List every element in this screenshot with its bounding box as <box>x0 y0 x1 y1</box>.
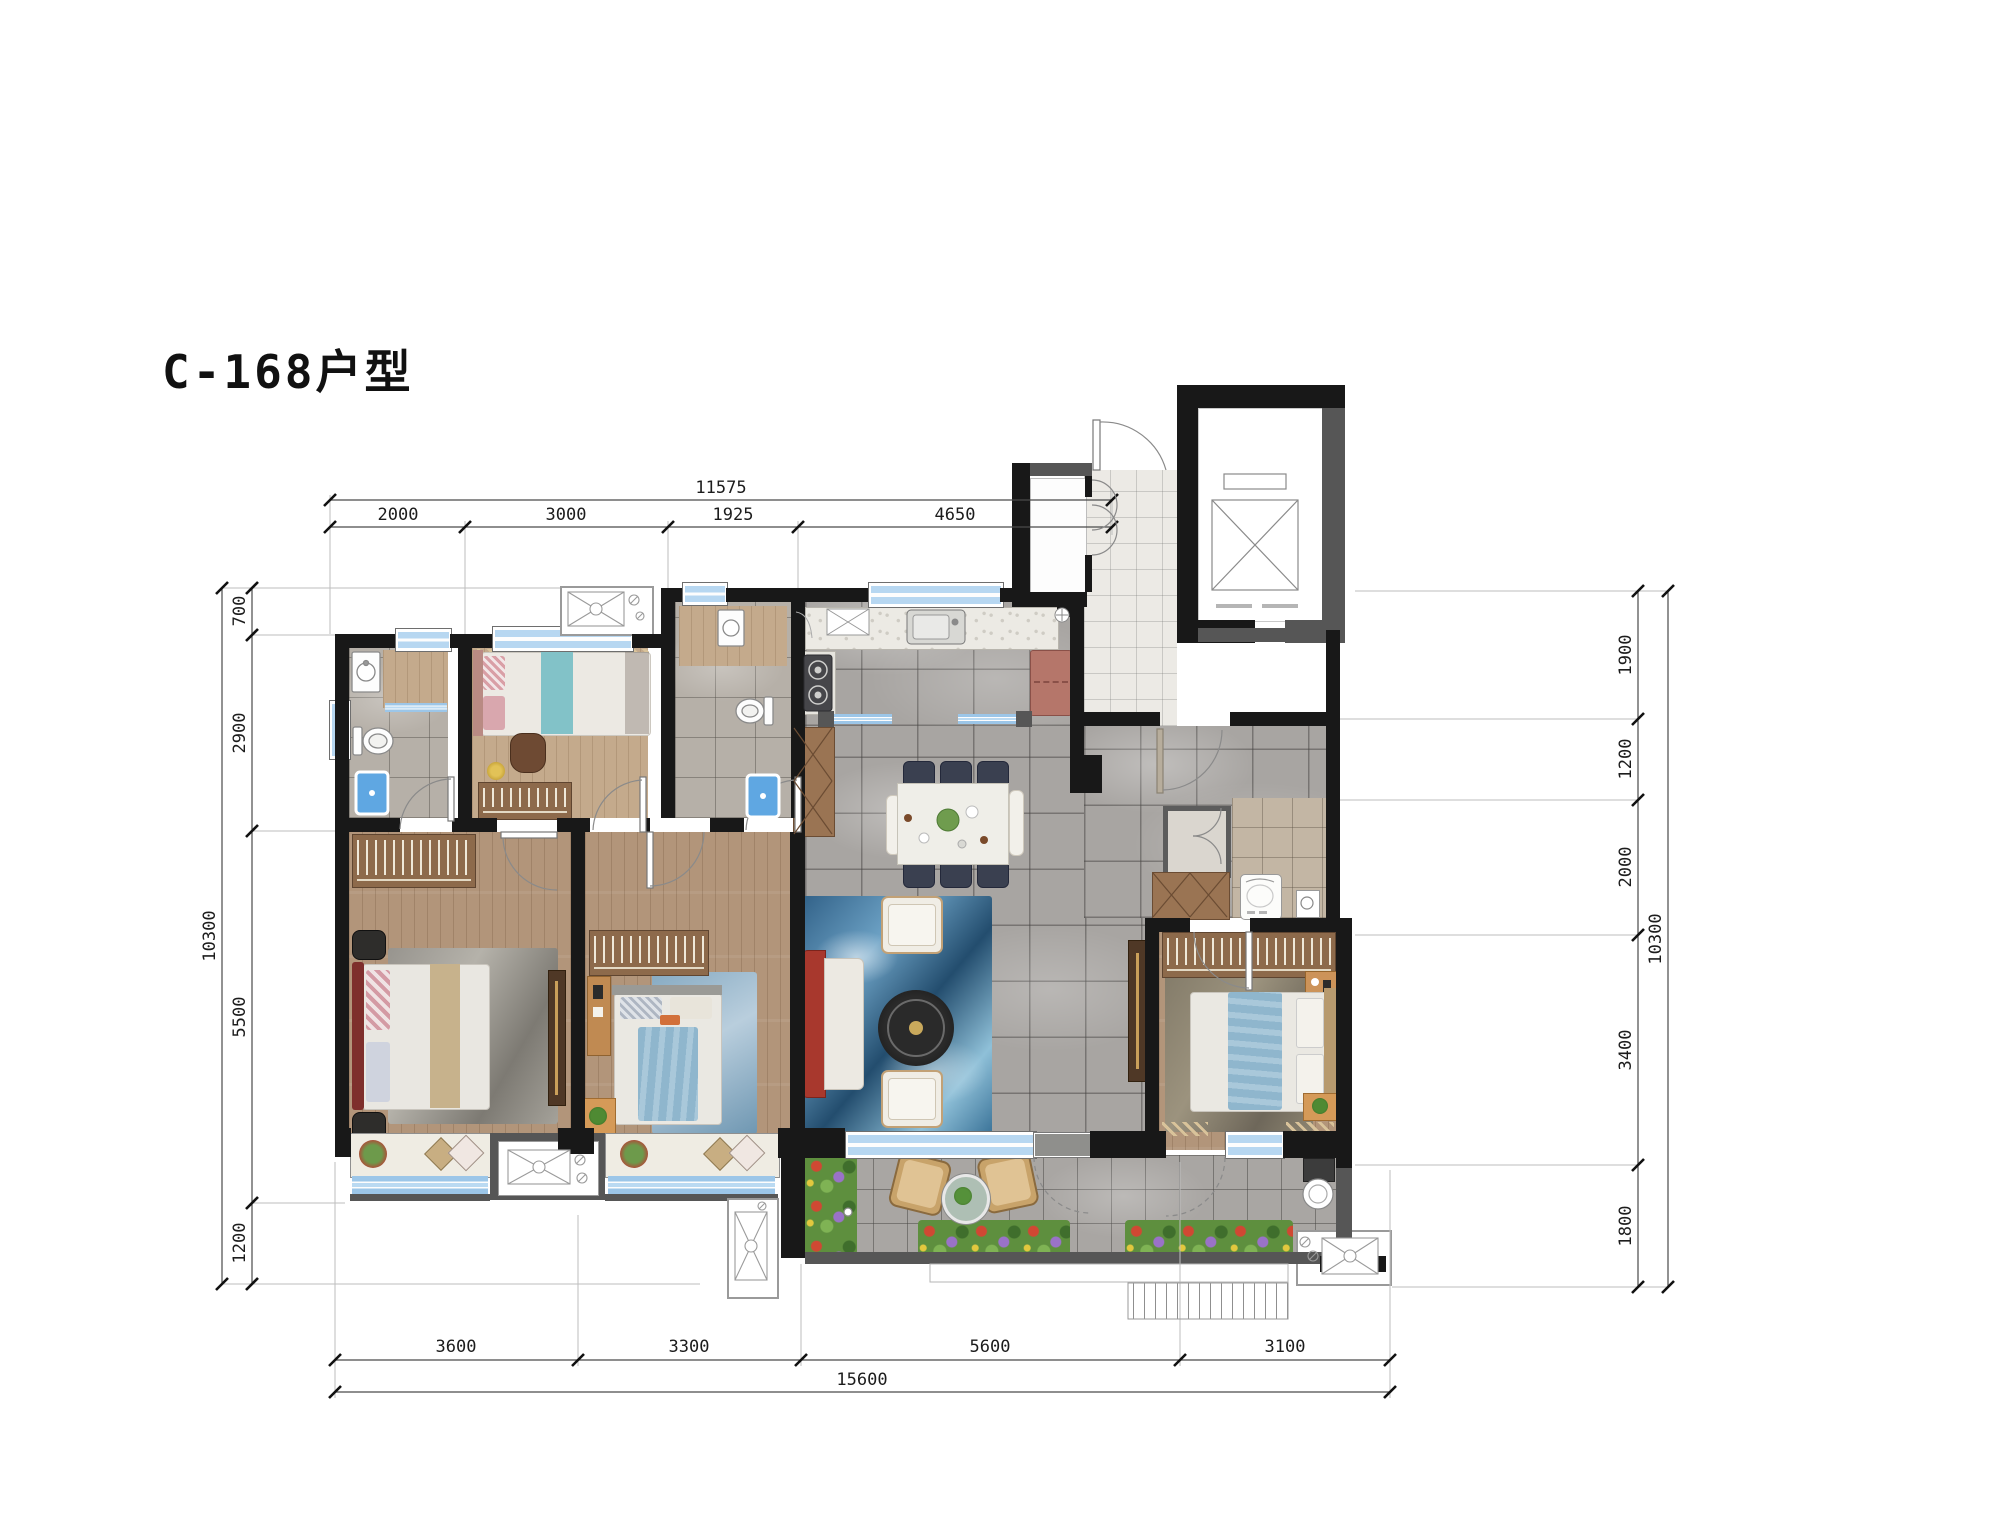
wall-segment <box>335 634 349 1155</box>
dim-bottom-seg: 3100 <box>1265 1337 1306 1357</box>
elevator-wall <box>1177 385 1198 643</box>
balcony-flower-bed <box>805 1155 857 1255</box>
dim-bottom-seg: 3600 <box>436 1337 477 1357</box>
wall-segment <box>1012 463 1030 592</box>
dining-bench <box>1009 790 1024 856</box>
balcony-table <box>942 1174 990 1224</box>
wall-segment <box>557 818 590 832</box>
dim-left-seg: 1200 <box>230 1223 250 1264</box>
dim-right-seg: 1800 <box>1616 1206 1636 1247</box>
wall-segment <box>1326 630 1340 918</box>
bedroom-2-bay-sill <box>605 1133 780 1178</box>
wall-segment <box>335 634 395 648</box>
kitchen-window <box>868 582 1004 608</box>
master-wardrobe <box>352 834 476 888</box>
wall-segment <box>1145 918 1159 1150</box>
wall-segment <box>781 1131 805 1258</box>
corridor-storage-closet <box>1163 806 1231 878</box>
dining-table <box>897 783 1009 865</box>
wall-segment <box>1283 1131 1336 1158</box>
wall-segment <box>675 588 682 602</box>
small-bedroom-bed <box>473 650 651 736</box>
floor-entry-hall <box>1084 470 1177 726</box>
dim-right-seg: 1200 <box>1616 739 1636 780</box>
wall-segment <box>1085 476 1092 497</box>
dim-top-total: 11575 <box>695 478 746 498</box>
wall-segment <box>661 588 675 818</box>
dim-top-seg: 3000 <box>546 505 587 525</box>
wall-segment <box>1084 712 1160 726</box>
wall-segment <box>1230 712 1326 726</box>
dim-bottom-total: 15600 <box>836 1370 887 1390</box>
kitchen-counter-side <box>800 651 836 715</box>
floor-bathroom-2-dry-area <box>679 606 787 666</box>
elevator-interior <box>1198 408 1324 622</box>
floor-plan-sheet: C-168户型 <box>0 0 1995 1540</box>
bedroom-2-bed <box>612 985 722 1125</box>
master-bay-frame <box>350 1194 490 1201</box>
dim-right-seg: 1900 <box>1616 635 1636 676</box>
wall-segment <box>800 818 805 832</box>
master-bed <box>352 962 488 1110</box>
balcony-parapet <box>805 1252 1336 1264</box>
bedroom-3-south-window <box>1225 1131 1285 1159</box>
wall-segment <box>790 832 805 1150</box>
washing-machine <box>1240 874 1282 920</box>
dim-bottom-seg: 3300 <box>669 1337 710 1357</box>
small-bedroom-chair <box>510 733 546 773</box>
dim-left-seg: 5500 <box>230 997 250 1038</box>
bathroom-2-window <box>682 582 728 606</box>
ac-platform-top <box>560 586 654 636</box>
wall-segment <box>645 818 650 832</box>
wall-segment <box>458 634 472 818</box>
corridor-cabinet <box>1152 872 1230 920</box>
dim-left-total: 10300 <box>200 910 220 961</box>
bathroom-1-window <box>395 628 452 652</box>
small-bedroom-stool <box>487 762 505 780</box>
wall-segment <box>335 1128 351 1157</box>
dim-top-seg: 1925 <box>713 505 754 525</box>
bedroom-2-bay-glass <box>608 1176 775 1194</box>
balcony-railing <box>930 1264 1288 1319</box>
wall-segment <box>1090 1131 1166 1158</box>
master-tv-console <box>548 970 566 1106</box>
kitchen-partition-post <box>818 711 834 727</box>
floor-bathroom-1-dry-area <box>383 650 448 708</box>
wall-segment <box>1145 918 1190 932</box>
wall-segment <box>710 818 744 832</box>
bedroom-2-wardrobe <box>589 930 709 976</box>
kitchen-partition-glass <box>958 714 1016 724</box>
dim-top-seg: 4650 <box>935 505 976 525</box>
dim-right-seg: 3400 <box>1616 1030 1636 1071</box>
wall-segment <box>1336 1168 1352 1258</box>
wall-segment <box>335 818 400 832</box>
curtain-hatch <box>1162 1122 1208 1136</box>
dim-left-seg: 2900 <box>230 713 250 754</box>
dim-bottom-seg: 5600 <box>970 1337 1011 1357</box>
ac-platform-vertical <box>727 1198 779 1299</box>
master-bay-sill <box>350 1133 492 1178</box>
dim-right-seg: 2000 <box>1616 847 1636 888</box>
dim-top-seg: 2000 <box>378 505 419 525</box>
wall-segment <box>1070 755 1102 793</box>
bedroom-2-desk <box>587 976 611 1056</box>
entry-shoe-cabinet <box>1030 650 1072 716</box>
wall-segment <box>1085 555 1092 592</box>
wall-segment <box>1030 463 1092 476</box>
dim-left-seg: 700 <box>230 596 250 627</box>
master-lounge-chair <box>352 930 386 960</box>
page-title: C-168户型 <box>162 336 413 402</box>
kitchen-partition-post <box>1016 711 1032 727</box>
floor-shaft-niche <box>1030 478 1087 594</box>
coffee-table <box>878 990 954 1066</box>
elevator-wall <box>1177 385 1345 408</box>
bedroom-3-plant <box>1303 1093 1337 1121</box>
armchair <box>881 1070 943 1128</box>
wall-segment <box>1336 918 1352 1168</box>
wall-segment <box>791 588 805 818</box>
balcony-sliding-door-panel <box>1034 1133 1092 1157</box>
bathroom-1-glass-partition <box>385 703 447 712</box>
armchair <box>881 896 943 954</box>
utility-sink <box>1296 890 1320 918</box>
balcony-laundry-cabinet <box>1303 1158 1335 1182</box>
dim-right-total: 10300 <box>1646 913 1666 964</box>
master-bay-glass <box>352 1176 488 1194</box>
wall-segment <box>558 1128 594 1154</box>
small-bedroom-wardrobe <box>478 782 572 820</box>
living-south-window <box>845 1131 1037 1159</box>
kitchen-counter <box>805 607 1059 650</box>
kitchen-partition-glass <box>834 714 892 724</box>
wall-segment <box>1250 918 1350 932</box>
wall-segment <box>1198 628 1326 642</box>
sofa-seat <box>824 958 864 1090</box>
elevator-wall <box>1322 408 1345 642</box>
wall-segment <box>571 832 585 1150</box>
wall-segment <box>1320 1256 1386 1272</box>
wall-segment <box>452 818 497 832</box>
